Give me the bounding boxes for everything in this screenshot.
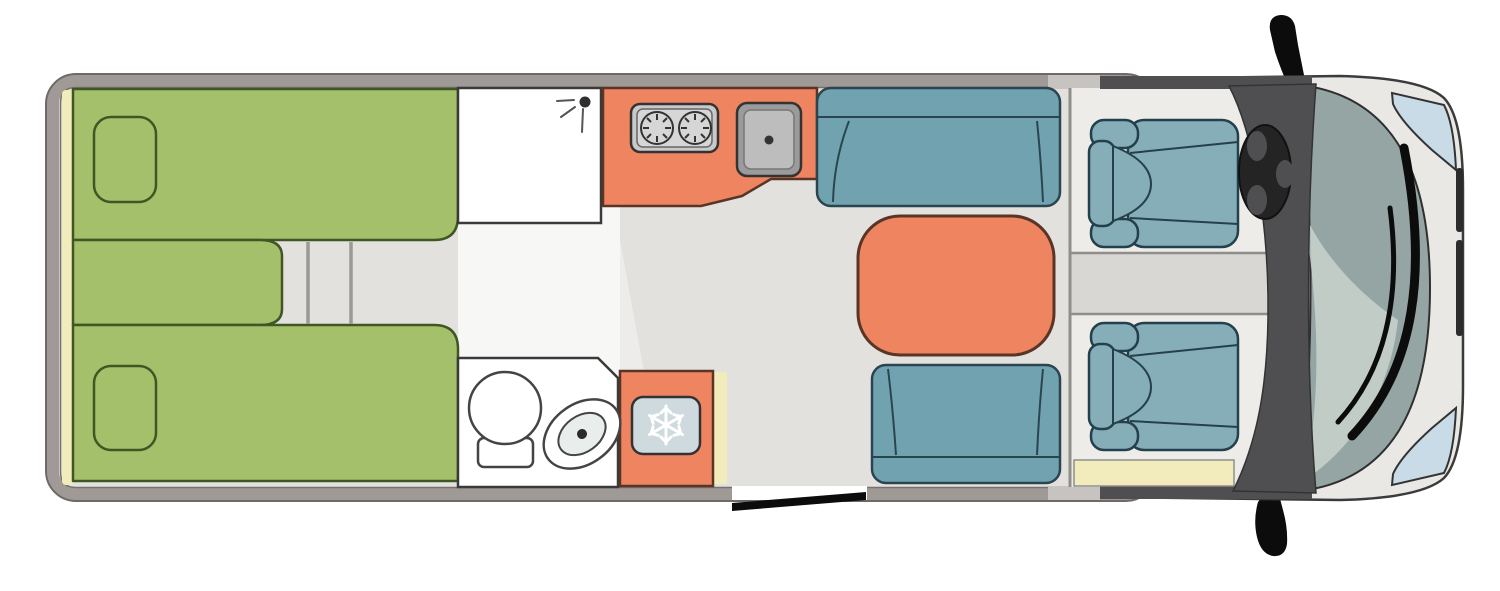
bench-seat-front	[817, 88, 1060, 206]
seat-backrest	[1089, 141, 1115, 226]
cab-step-band	[1071, 253, 1280, 314]
shower-cubicle	[458, 88, 601, 223]
sink-drain-icon	[765, 136, 774, 145]
cab-seat-driver	[1089, 120, 1238, 247]
kitchen-sink	[737, 103, 801, 176]
front-grille-bar	[1456, 240, 1463, 336]
hob	[631, 104, 718, 152]
front-grille-bar	[1456, 168, 1463, 232]
wash-basin	[469, 372, 541, 444]
wall-cap-top	[1048, 75, 1100, 88]
wheel-cutout	[1247, 185, 1267, 215]
center-cushion	[73, 240, 282, 325]
pillow-bottom	[94, 366, 156, 450]
wall-cap-bottom	[1048, 487, 1100, 500]
bench-seat-rear	[872, 365, 1060, 483]
cab-seat-passenger	[1089, 323, 1238, 450]
cab-entry-step	[1074, 460, 1234, 486]
pillow-top	[94, 117, 156, 202]
motorhome-floorplan	[0, 0, 1500, 591]
wheel-cutout	[1247, 131, 1267, 161]
floorplan-canvas	[0, 0, 1500, 591]
dinette-table	[858, 216, 1054, 355]
trim-strip-fridge	[714, 372, 727, 484]
wheel-cutout	[1276, 160, 1294, 188]
